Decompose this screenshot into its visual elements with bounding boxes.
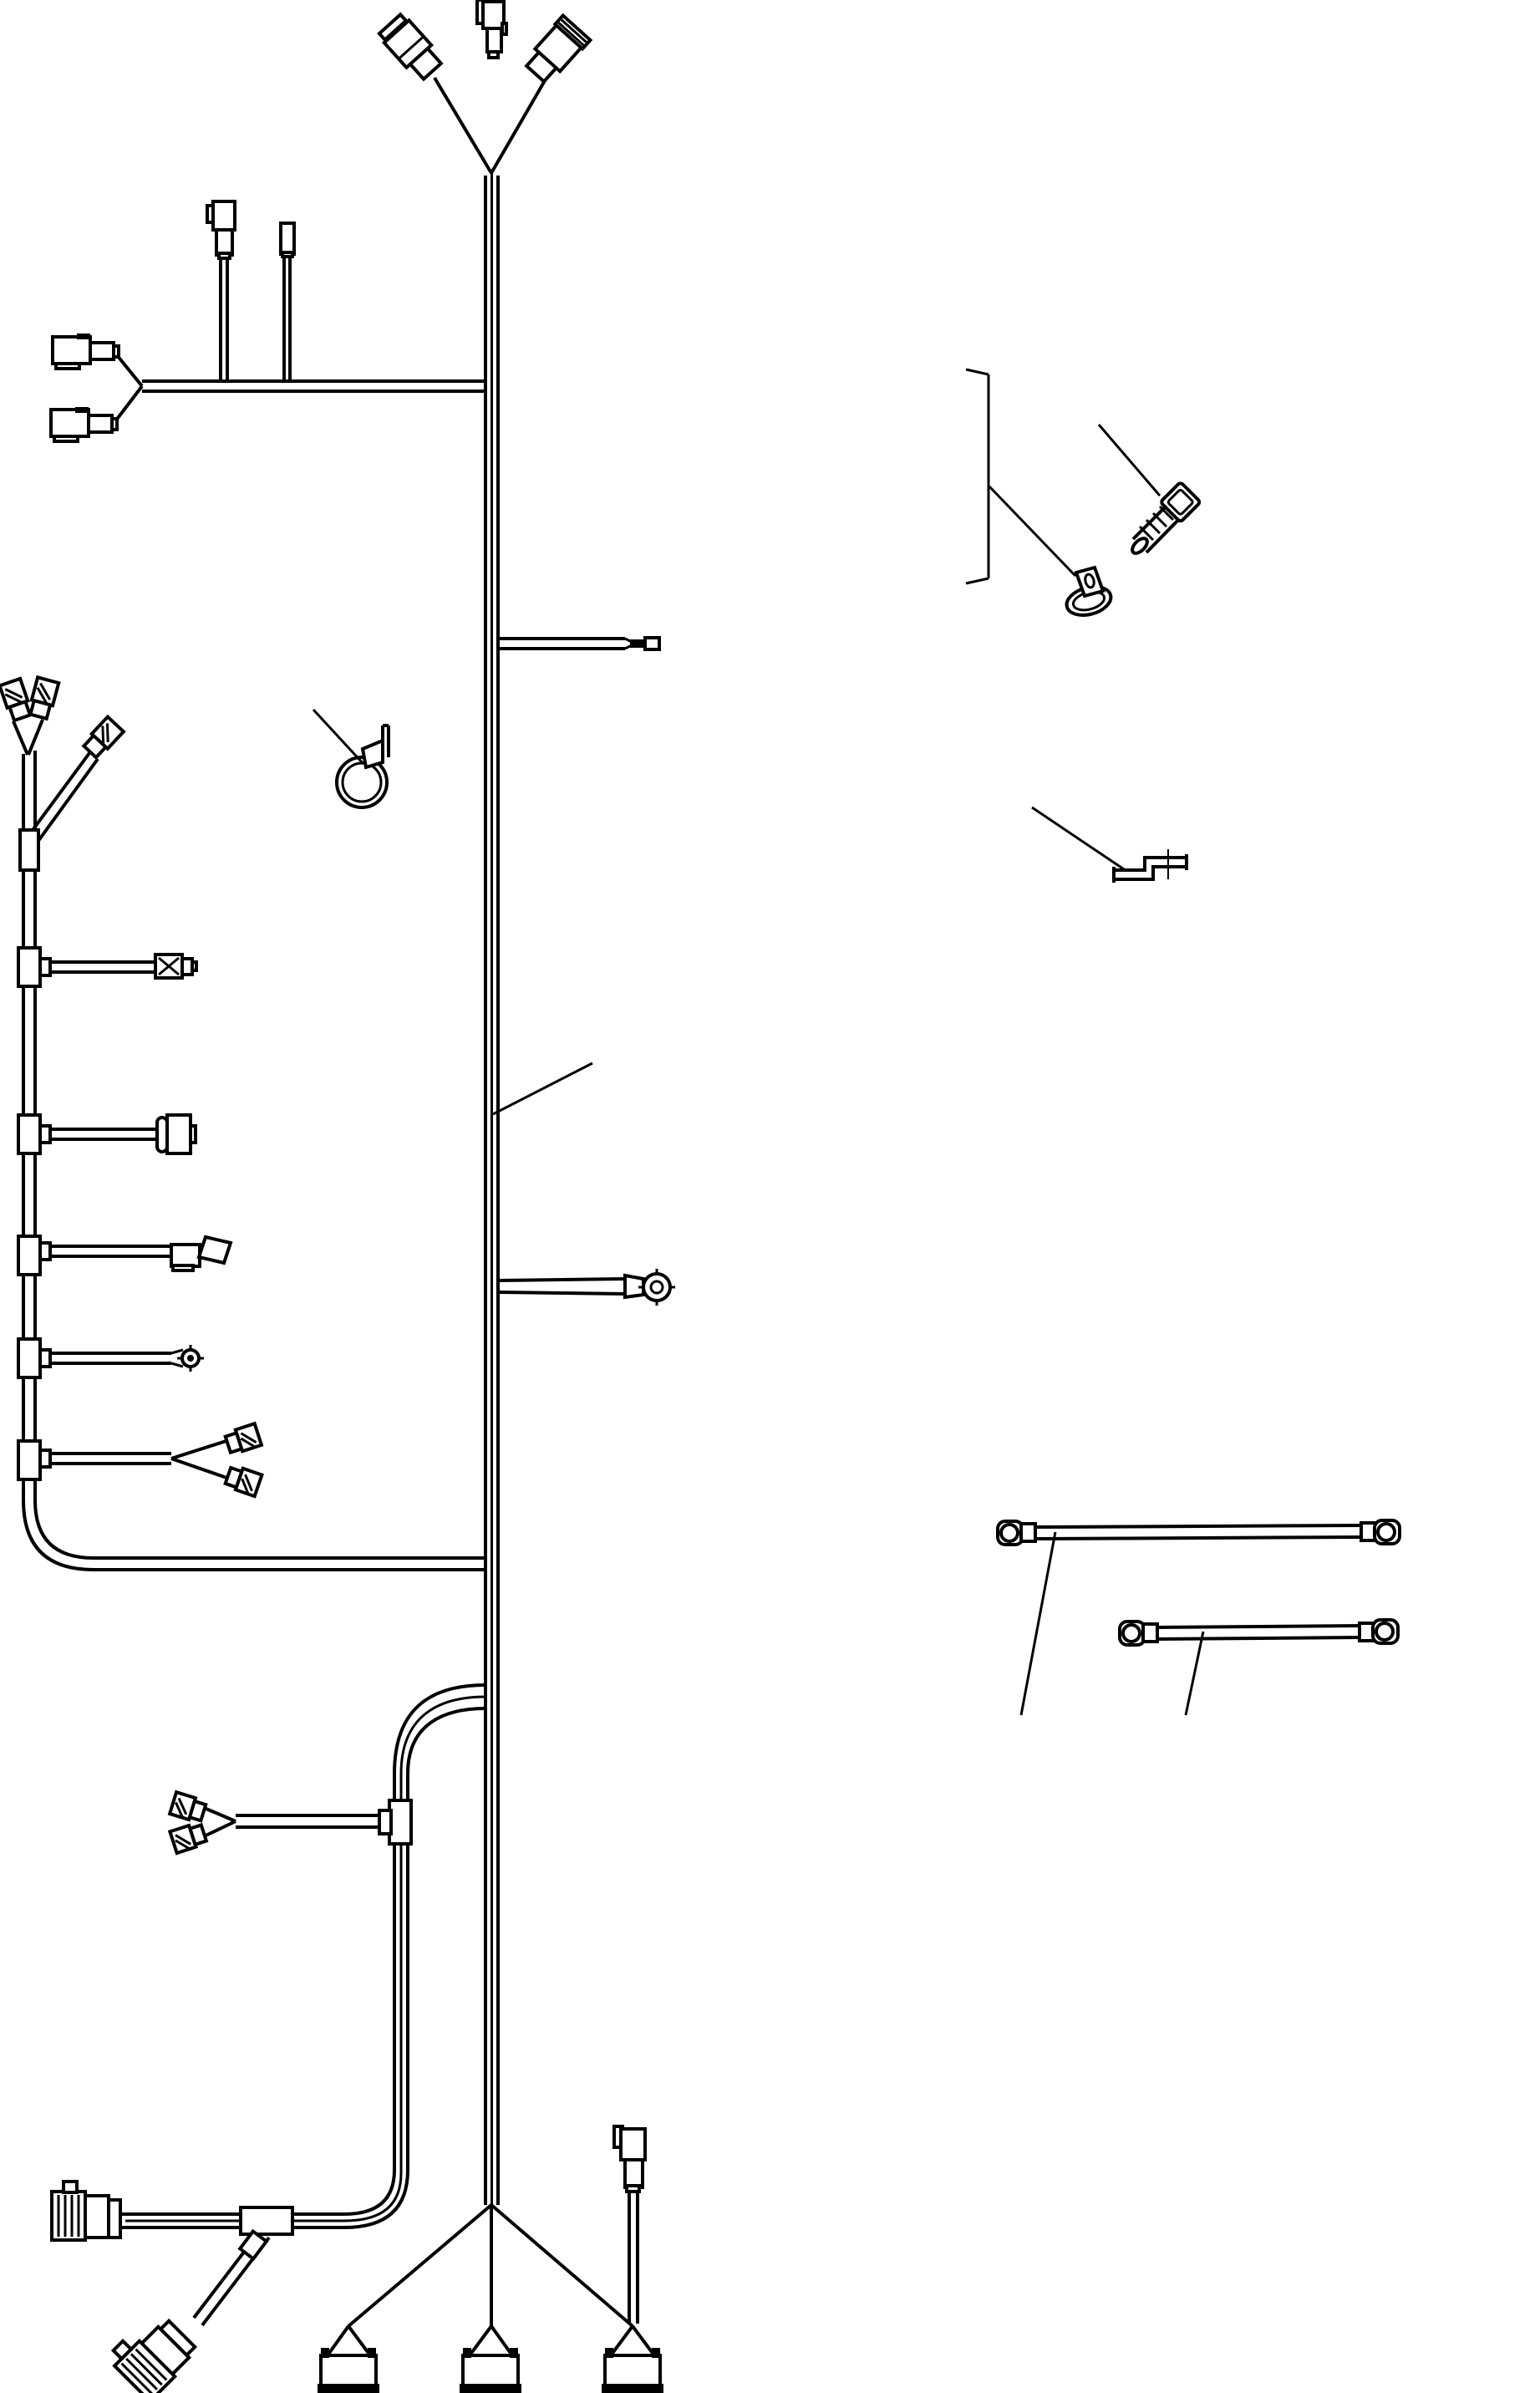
top-connector-mid-tip bbox=[489, 52, 498, 58]
left455-lower-nub bbox=[112, 419, 117, 430]
top-connector-mid-lower bbox=[487, 28, 501, 52]
blade-topright-inner bbox=[30, 700, 50, 719]
branch3-connector-base bbox=[173, 1265, 193, 1270]
t480-blade-up-inner bbox=[190, 1801, 206, 1820]
t480-split-down bbox=[202, 1821, 236, 1837]
minifan3-a bbox=[611, 2326, 633, 2355]
bottom-connector2-body bbox=[463, 2355, 518, 2387]
trunk-leader bbox=[493, 1063, 592, 1114]
t480-nub bbox=[379, 1810, 391, 1834]
bottom-connector3-body bbox=[605, 2355, 660, 2387]
stub1-body bbox=[216, 230, 232, 255]
top-fan-wire-left bbox=[435, 78, 491, 173]
callout-bracket-bottom-tick bbox=[966, 578, 989, 583]
cable-long-wire-b bbox=[1035, 1537, 1363, 1539]
parts-diagram-page bbox=[0, 0, 1540, 2393]
elbow1-collar bbox=[109, 2200, 120, 2238]
bottom-connector1-body bbox=[321, 2355, 376, 2387]
cable-long-ring-right-hole bbox=[1378, 1524, 1395, 1540]
minifan1-b bbox=[348, 2326, 370, 2355]
tjunction-nub-3 bbox=[40, 1243, 50, 1260]
branch455-diag-up bbox=[117, 355, 142, 386]
pigtail-upper bbox=[621, 2129, 645, 2160]
stub1-cap bbox=[213, 201, 235, 230]
branch1540-wire-bottom bbox=[498, 1292, 625, 1294]
leftsub-v-wire-left bbox=[13, 721, 28, 755]
wiring-harness-diagram bbox=[0, 0, 1540, 2393]
branch4-cone-a bbox=[171, 1350, 183, 1353]
bottom-connector1-band bbox=[318, 2384, 379, 2393]
left455-upper-latch bbox=[77, 333, 90, 339]
branch770-tip bbox=[645, 638, 659, 649]
tjunction-nub-5 bbox=[40, 1450, 50, 1467]
branch5-split-up bbox=[171, 1439, 231, 1459]
zbracket-leader bbox=[1032, 807, 1126, 871]
stub2-tip bbox=[282, 252, 292, 257]
top-fan-wire-right bbox=[491, 78, 546, 173]
bandclamp-inner bbox=[343, 763, 381, 802]
leftsub-elbow-inner bbox=[35, 1500, 94, 1558]
cable-short-leader bbox=[1186, 1632, 1203, 1715]
bottom-fan-right bbox=[491, 2205, 633, 2326]
cable-long-barrel-left bbox=[1021, 1524, 1035, 1541]
elbow1-boot bbox=[52, 2192, 85, 2240]
left455-upper-cap bbox=[90, 343, 114, 359]
stub2-body bbox=[281, 223, 294, 254]
bottom-connector2-tab-l bbox=[463, 2348, 471, 2358]
pigtail-tip bbox=[627, 2186, 639, 2192]
minifan2-a bbox=[470, 2326, 491, 2355]
cable-short-wire-b bbox=[1157, 1637, 1361, 1639]
t480-split-up bbox=[202, 1807, 236, 1821]
leftsub-v-wire-right bbox=[28, 720, 43, 755]
zbracket-outline bbox=[1114, 858, 1187, 879]
branch2-connector-nub bbox=[191, 1126, 196, 1143]
tjunction-block-5 bbox=[18, 1441, 40, 1479]
bolt-thread2 bbox=[1153, 513, 1166, 527]
cable-short-barrel-left bbox=[1143, 1624, 1157, 1642]
branch2-connector-body bbox=[167, 1115, 191, 1153]
branch4-eyelet-center bbox=[187, 1355, 194, 1362]
tjunction-block-1 bbox=[18, 948, 40, 986]
elbow-t-sleeve bbox=[241, 2207, 292, 2234]
leftsub-elbow-outer bbox=[23, 1500, 94, 1570]
elbow1-body bbox=[85, 2196, 109, 2238]
minifan2-b bbox=[491, 2326, 512, 2355]
callout-bracket-top-tick bbox=[966, 369, 989, 374]
bottom-connector1-tab-r bbox=[368, 2348, 376, 2358]
cable-long-leader bbox=[1021, 1532, 1055, 1715]
tjunction-block-3 bbox=[18, 1236, 40, 1275]
cable-long-ring-left-hole bbox=[1001, 1525, 1018, 1541]
left455-upper-body bbox=[53, 337, 90, 364]
branch5-split-down bbox=[171, 1459, 231, 1479]
bottom-connector2-tab-r bbox=[510, 2348, 518, 2358]
bolt-thread3 bbox=[1146, 520, 1160, 533]
tjunction-nub-1 bbox=[40, 959, 50, 975]
branch455-diag-down bbox=[115, 386, 142, 421]
cable-short-ring-left-hole bbox=[1123, 1625, 1140, 1642]
blade-topleft-inner bbox=[9, 701, 29, 720]
tjunction-block-4 bbox=[18, 1339, 40, 1377]
bandclamp-leader bbox=[313, 710, 363, 764]
bandclamp-flag bbox=[363, 741, 383, 767]
pigtail-lower bbox=[625, 2160, 643, 2187]
left455-lower-cap bbox=[89, 415, 112, 432]
ring1540-outer bbox=[643, 1274, 670, 1301]
bottom-connector3-tab-l bbox=[605, 2348, 613, 2358]
left455-upper-nub bbox=[114, 346, 119, 357]
bottom-connector2-band bbox=[460, 2384, 521, 2393]
branch4-cone-b bbox=[171, 1363, 183, 1367]
bottom-connector3-tab-r bbox=[652, 2348, 660, 2358]
curvebranch-elbow-b bbox=[344, 2170, 408, 2228]
branch770-blade bbox=[630, 639, 645, 648]
minifan1-a bbox=[328, 2326, 348, 2355]
leftsub-sleeve bbox=[20, 830, 38, 870]
branch1-connector-nub bbox=[192, 962, 196, 970]
branch3-connector-body bbox=[171, 1245, 200, 1266]
elbow1-nub bbox=[64, 2182, 77, 2192]
left455-lower-base bbox=[54, 436, 78, 441]
cable-long-wire-a bbox=[1035, 1525, 1363, 1527]
leftsub-diag-wire-b bbox=[36, 759, 98, 844]
left455-lower-latch bbox=[75, 407, 89, 413]
left455-lower-body bbox=[51, 410, 89, 436]
tjunction-nub-2 bbox=[40, 1126, 50, 1143]
branch3-connector-cap bbox=[199, 1237, 231, 1263]
branch1540-wire-top bbox=[498, 1279, 625, 1281]
cable-short-wire-a bbox=[1157, 1626, 1361, 1627]
tjunction-nub-4 bbox=[40, 1350, 50, 1367]
tjunction-block-2 bbox=[18, 1115, 40, 1153]
left455-upper-base bbox=[56, 364, 79, 369]
wireclip-leader bbox=[989, 486, 1075, 576]
stub1-tip bbox=[219, 253, 230, 258]
bottom-connector3-band bbox=[602, 2384, 663, 2393]
bottom-connector1-tab-l bbox=[321, 2348, 329, 2358]
cable-short-ring-right-hole bbox=[1376, 1623, 1393, 1640]
minifan3-b bbox=[633, 2326, 654, 2355]
bolt-leader bbox=[1099, 425, 1160, 496]
